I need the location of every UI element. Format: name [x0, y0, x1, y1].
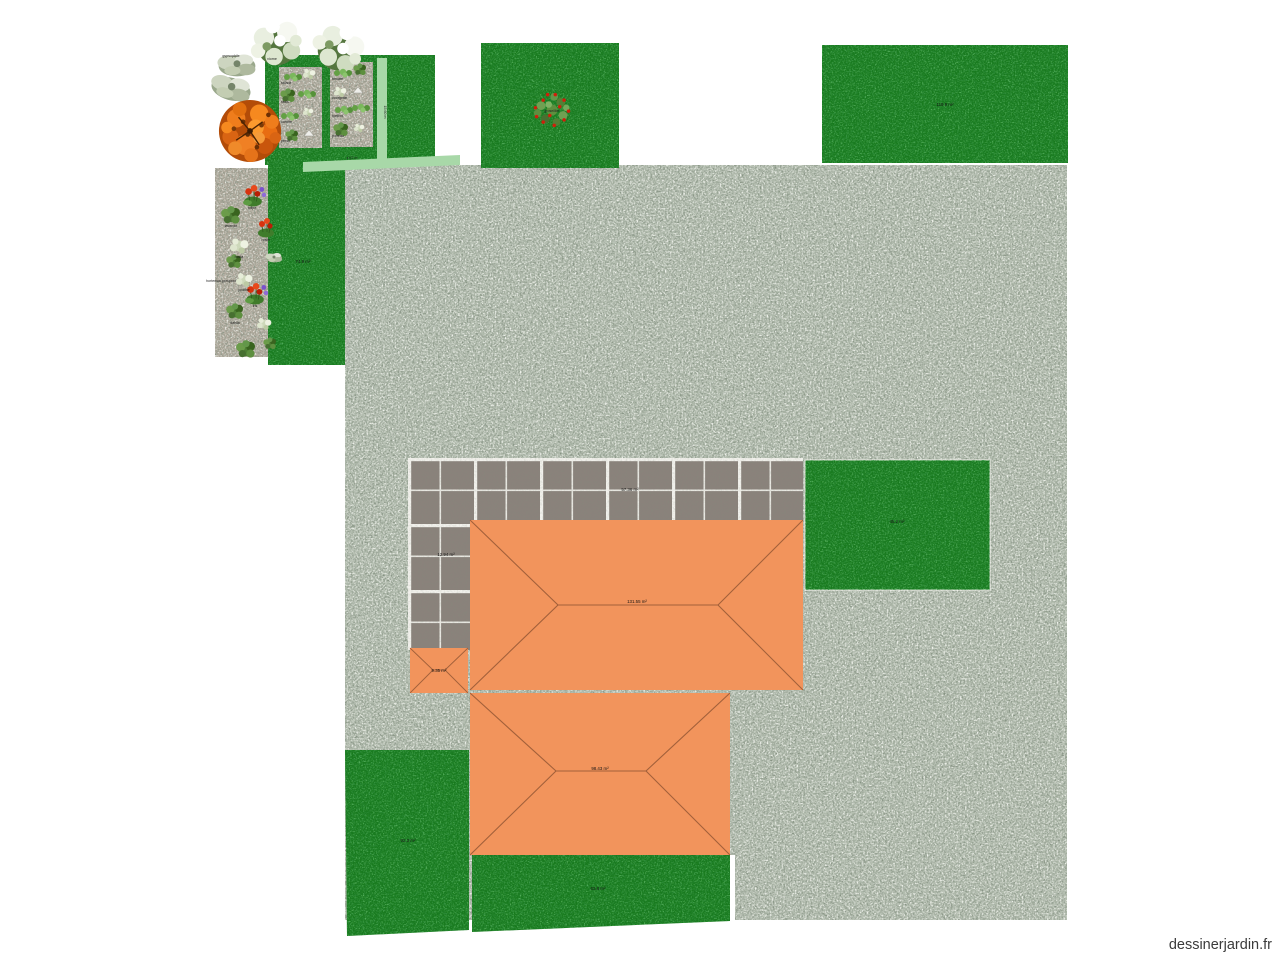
main-house[interactable]: [470, 520, 803, 690]
bottom-strip-lawn[interactable]: [472, 855, 730, 932]
top-right-lawn-area-label: 119.9 m²: [936, 102, 954, 107]
specimen-gray-label: gypsophile: [222, 54, 239, 58]
bed1-plant-label: radis: [281, 100, 289, 104]
site-watermark: dessinerjardin.fr: [1169, 937, 1272, 953]
orange-tree-icon[interactable]: [219, 100, 281, 162]
bottom-left-lawn[interactable]: [345, 750, 469, 936]
bed2-plant-label: haricot: [332, 114, 343, 118]
terrace-area-label: 12.94 m²: [437, 552, 455, 557]
second-house[interactable]: [470, 693, 730, 855]
berry-bush-label: groseillier: [544, 109, 560, 113]
specimen-bush-label: viorne: [267, 57, 277, 61]
border-plant-label: lavande: [225, 224, 238, 228]
bed2-plant-label: courgette: [332, 96, 347, 100]
bed1-plant-label: carotte: [281, 120, 292, 124]
garage-area-label: 9.35 m²: [432, 668, 447, 673]
left-lawn[interactable]: [268, 165, 345, 365]
garden-plan-drawing: viorne gypsophile groseillier salade rad…: [0, 0, 1280, 960]
patio-area-label: 57.36 m²: [621, 487, 639, 492]
path-vertical-dimension-label: 15.60 m: [383, 106, 387, 119]
flower-border-bed[interactable]: [215, 168, 268, 357]
border-plant-label: pivoine: [238, 288, 249, 292]
right-lawn-area-label: 45.2 m²: [890, 519, 905, 524]
bed1-plant-label: persil: [281, 139, 290, 143]
garden-plan-canvas: viorne gypsophile groseillier salade rad…: [0, 0, 1280, 960]
bed2-plant-label: poireau: [332, 134, 344, 138]
border-plant-label: tulipe: [248, 206, 257, 210]
border-side-label: hortensia grimpant: [206, 279, 236, 283]
border-plant-label: rosier: [262, 238, 272, 242]
bottom-left-lawn-area-label: 92.3 m²: [401, 838, 416, 843]
main-house-area-label: 131.55 m²: [627, 599, 647, 604]
path-diagonal-dimension-label: 4.57 m: [346, 156, 357, 160]
border-plant-label: dahlia: [230, 321, 240, 325]
second-house-area-label: 98.43 m²: [591, 766, 609, 771]
right-lawn[interactable]: [805, 460, 990, 590]
bed2-plant-label: tomate: [332, 77, 343, 81]
border-plant-label: hosta: [235, 255, 244, 259]
lawn-gravel-seam: [730, 855, 735, 922]
bed1-plant-label: salade: [281, 81, 292, 85]
bottom-strip-lawn-area-label: 63.8 m²: [591, 886, 606, 891]
left-lawn-area-label: 74.9 m²: [296, 259, 311, 264]
border-plant-label: iris: [253, 304, 258, 308]
